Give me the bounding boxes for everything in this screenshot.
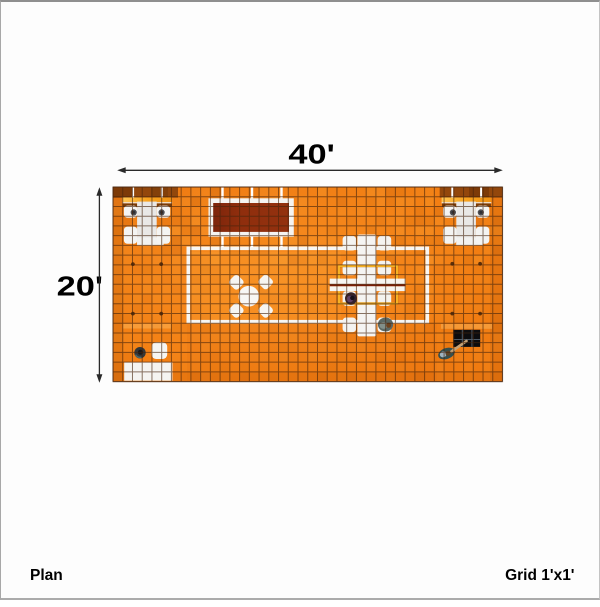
svg-text:20': 20'	[57, 271, 103, 302]
svg-text:Plan: Plan	[30, 567, 63, 584]
svg-text:40': 40'	[288, 139, 334, 170]
svg-text:Grid 1'x1': Grid 1'x1'	[505, 567, 574, 584]
